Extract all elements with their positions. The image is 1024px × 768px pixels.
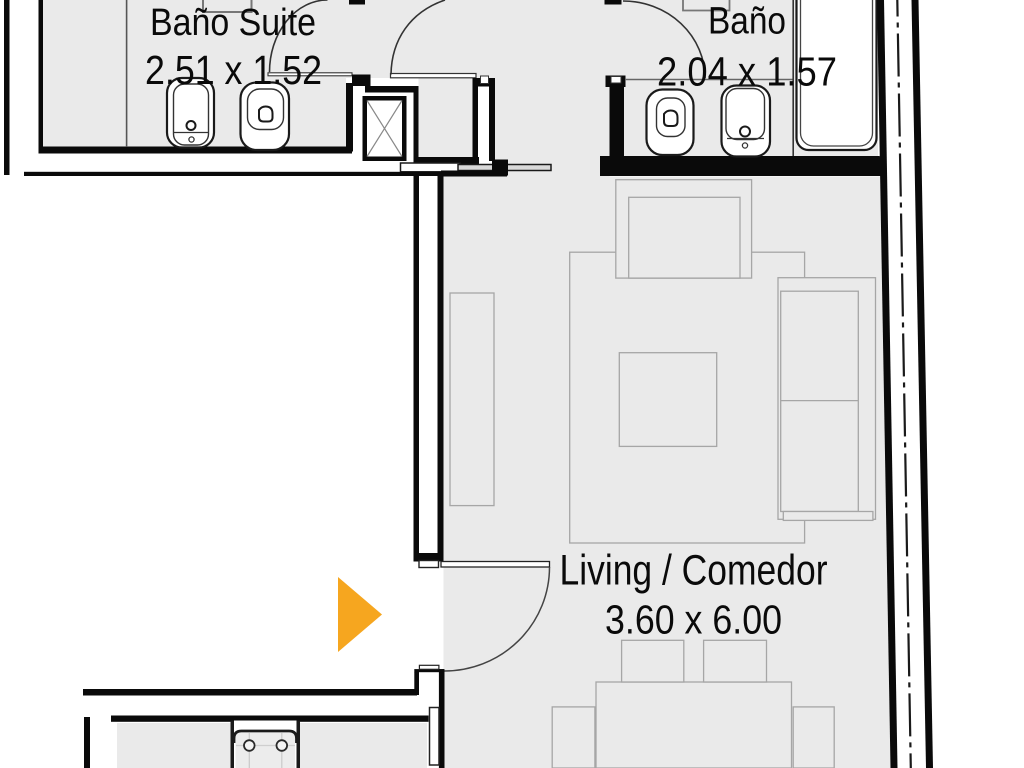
svg-text:2.04 x 1.57: 2.04 x 1.57	[657, 49, 837, 95]
svg-text:Baño Suite: Baño Suite	[150, 2, 316, 44]
svg-text:3.60 x 6.00: 3.60 x 6.00	[605, 597, 782, 643]
svg-text:Living / Comedor: Living / Comedor	[560, 547, 828, 595]
svg-text:2.51 x 1.52: 2.51 x 1.52	[145, 47, 322, 93]
svg-text:Baño: Baño	[708, 1, 786, 43]
